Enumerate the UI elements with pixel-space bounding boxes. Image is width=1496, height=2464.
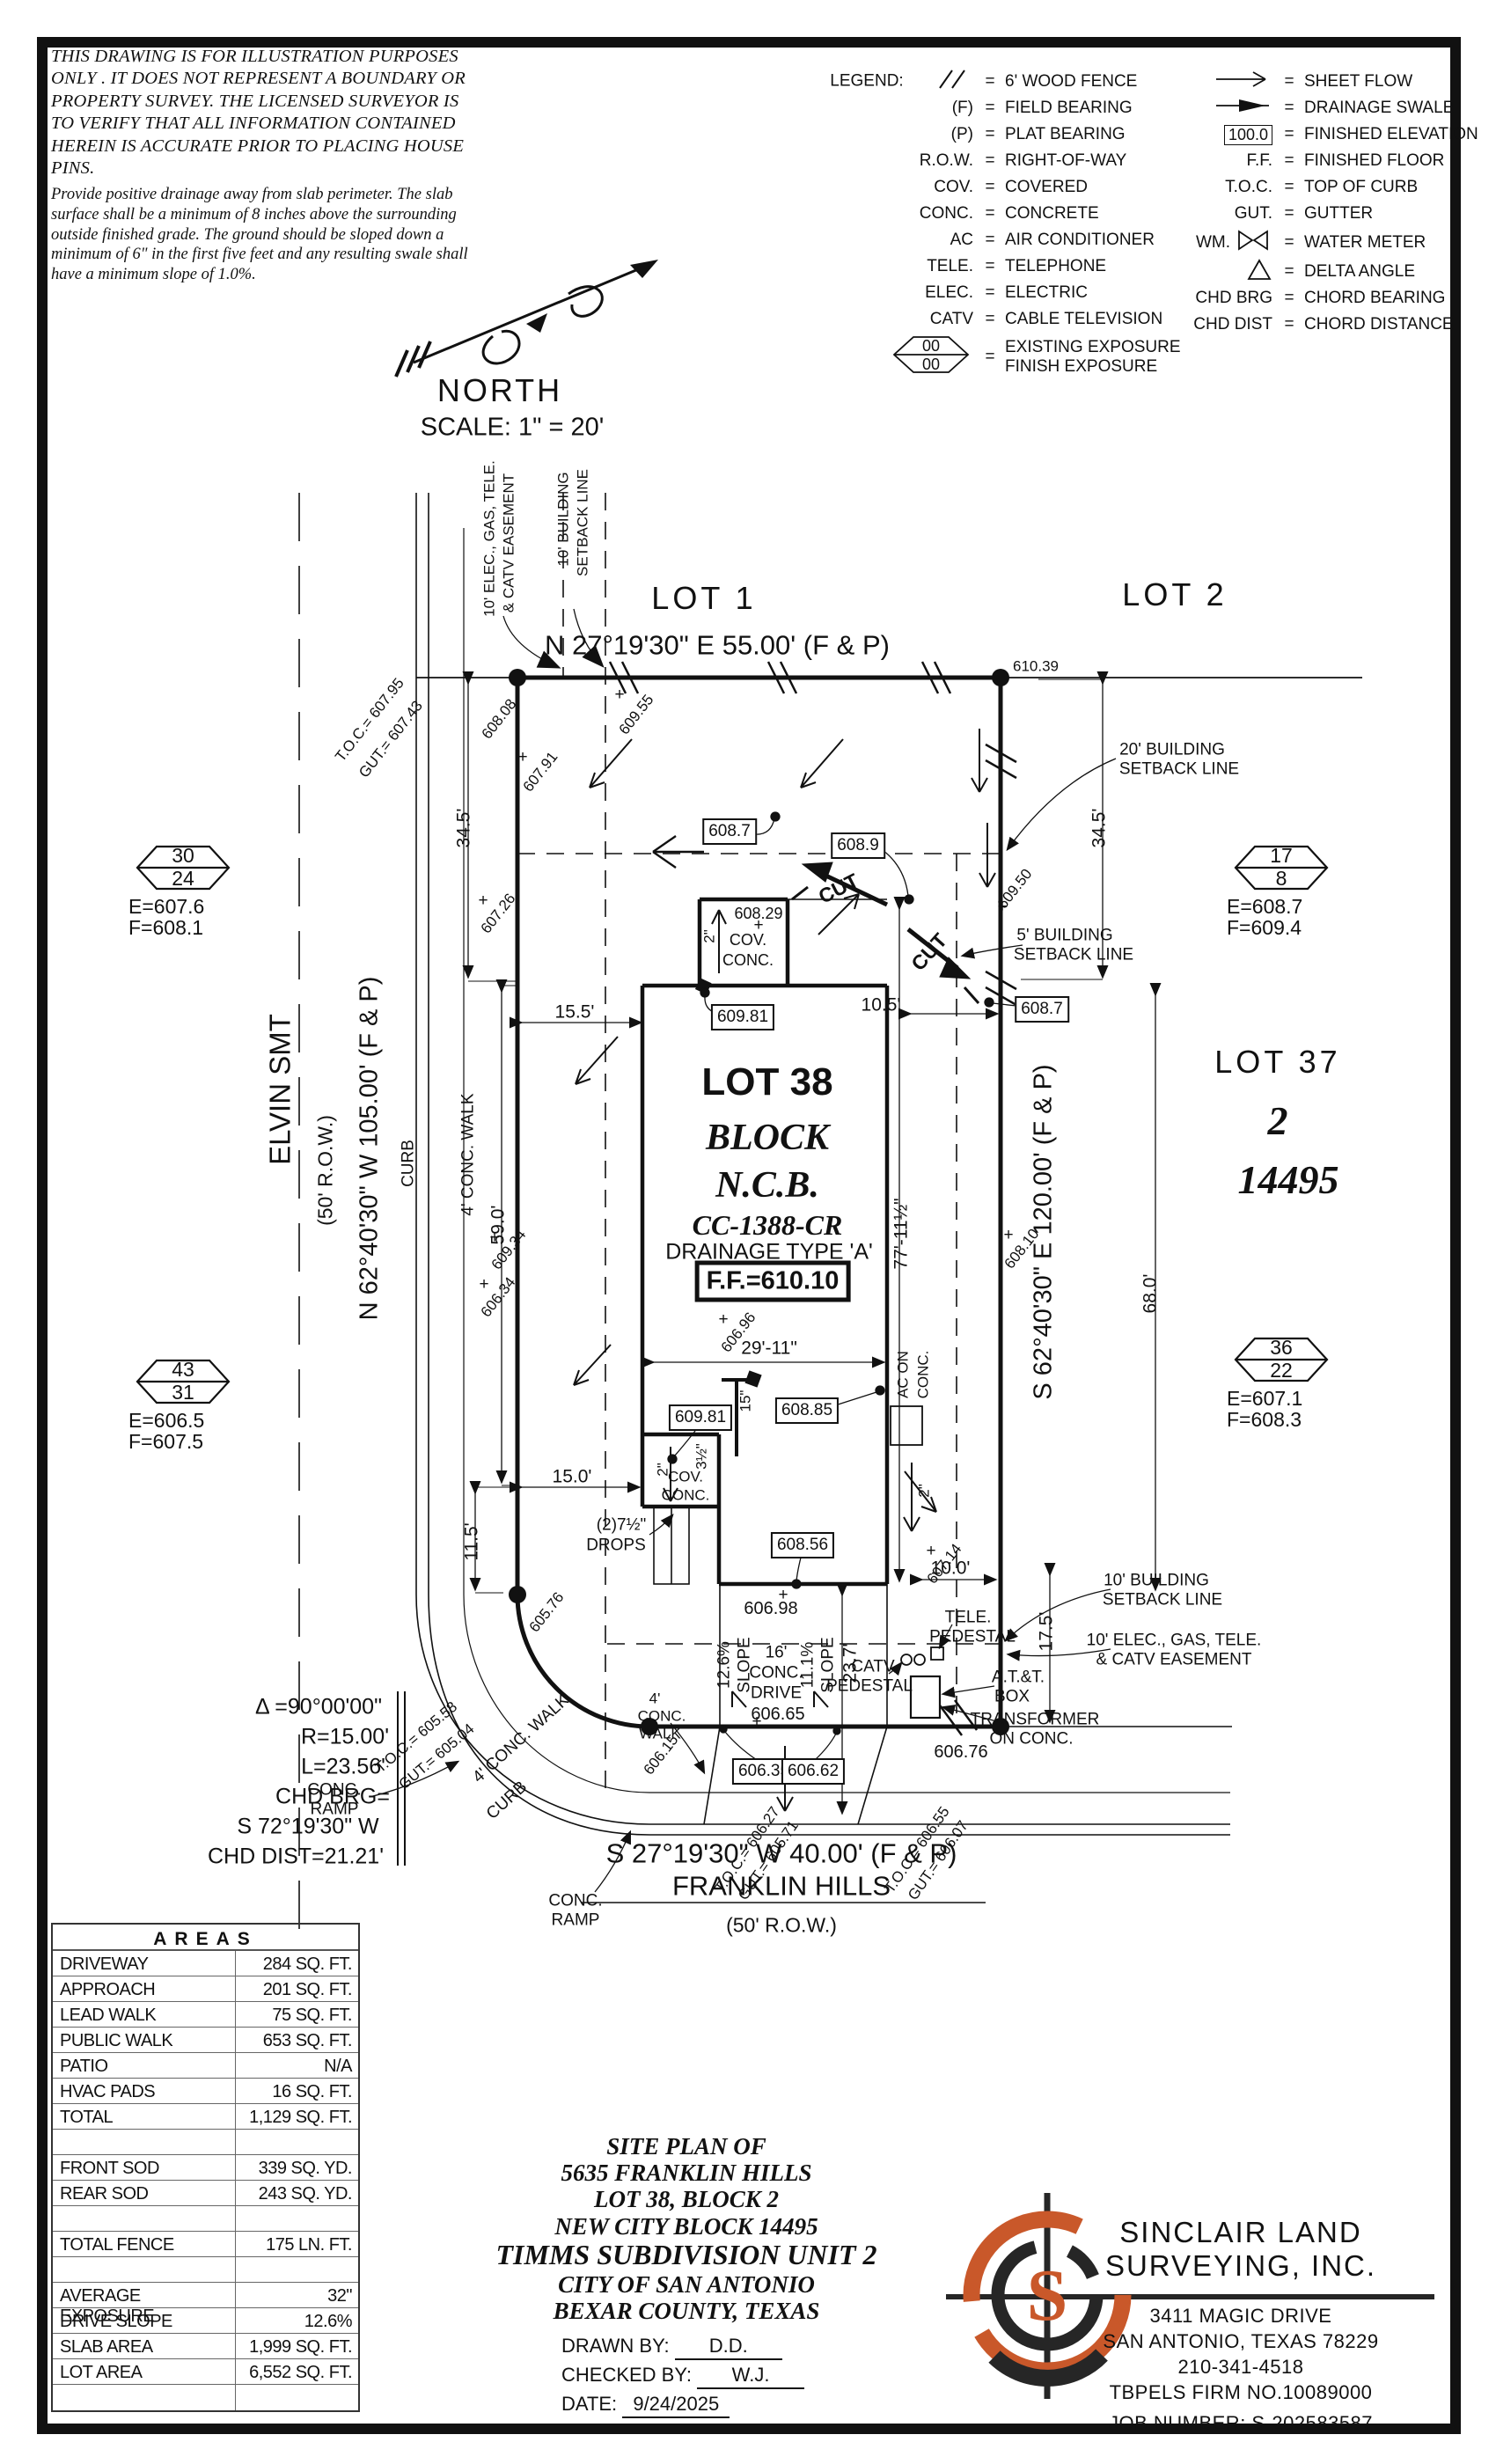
exposure-marker: 4331E=606.5F=607.5 <box>128 1358 229 1453</box>
areas-row-value: N/A <box>236 2053 358 2078</box>
plan-text-label: 3½" <box>694 1443 709 1470</box>
areas-row-value: 16 SQ. FT. <box>236 2079 358 2103</box>
areas-table-row <box>53 2130 358 2155</box>
finished-elevation-box: 608.9 <box>831 832 885 859</box>
areas-row-value: 175 LN. FT. <box>236 2232 358 2256</box>
plan-text-label: SETBACK LINE <box>1103 1592 1222 1609</box>
plan-text-label: SETBACK LINE <box>1014 947 1133 964</box>
site-plan-page: THIS DRAWING IS FOR ILLUSTRATION PURPOSE… <box>0 0 1496 2464</box>
plan-text-label: 12.6% <box>716 1641 733 1689</box>
scale-label: SCALE: 1" = 20' <box>421 415 604 441</box>
areas-row-label: LEAD WALK <box>53 2002 236 2027</box>
plan-text-label: L=23.56' <box>301 1756 385 1778</box>
plan-text-label: A.T.&T. <box>992 1669 1045 1686</box>
finished-elevation-box: 609.81 <box>711 1004 774 1030</box>
plan-text-label: 11.5' <box>463 1522 481 1560</box>
title-block-line: 5635 FRANKLIN HILLS <box>458 2160 915 2186</box>
svg-text:22: 22 <box>1270 1359 1293 1382</box>
title-block-field: CHECKED BY: W.J. <box>561 2364 915 2389</box>
plan-text-label: N.C.B. <box>715 1167 819 1204</box>
areas-row-value: 1,129 SQ. FT. <box>236 2104 358 2129</box>
plan-text-label: 34.5' <box>455 809 473 848</box>
title-block-line: SITE PLAN OF <box>458 2133 915 2160</box>
areas-row-value: 653 SQ. FT. <box>236 2028 358 2052</box>
svg-text:30: 30 <box>172 844 194 867</box>
plan-text-label: AC ON <box>896 1351 911 1398</box>
svg-text:F=607.5: F=607.5 <box>128 1430 203 1453</box>
areas-table-row: FRONT SOD339 SQ. YD. <box>53 2155 358 2181</box>
plan-text-label: 15" <box>738 1390 753 1412</box>
field-value: W.J. <box>697 2364 804 2389</box>
plan-text-label: 10' BUILDING <box>556 472 571 566</box>
finished-elevation-box: 606.62 <box>781 1758 845 1785</box>
areas-row-label: REAR SOD <box>53 2181 236 2205</box>
plan-text-label: PEDESTAL <box>826 1678 913 1695</box>
plan-text-label: LOT 2 <box>1122 579 1227 611</box>
plan-text-label: 14495 <box>1238 1160 1339 1200</box>
plan-text-label: N 27°19'30" E 55.00' (F & P) <box>545 632 890 659</box>
plan-text-label: CHD BRG= <box>275 1786 390 1808</box>
title-block-field: DRAWN BY: D.D. <box>561 2335 915 2360</box>
svg-text:E=607.1: E=607.1 <box>1227 1387 1302 1410</box>
spot-elevation-cross: + <box>997 898 1007 917</box>
svg-text:36: 36 <box>1270 1336 1293 1359</box>
plan-text-label: (2)7½" <box>597 1517 646 1534</box>
areas-row-value: 12.6% <box>236 2308 358 2333</box>
field-label: DATE: <box>561 2393 622 2415</box>
firm-name-line1: SINCLAIR LAND <box>1082 2216 1399 2249</box>
plan-text-label: 20' BUILDING <box>1119 742 1225 759</box>
plan-text-label: 10.5' <box>862 996 901 1015</box>
areas-row-label: DRIVEWAY <box>53 1951 236 1976</box>
svg-text:E=607.6: E=607.6 <box>128 895 204 918</box>
finished-floor-box: F.F.=610.10 <box>695 1261 851 1302</box>
plan-text-label: CC-1388-CR <box>693 1211 843 1239</box>
plan-text-label: CONC. <box>722 952 774 968</box>
plan-text-label: 10' ELEC., GAS, TELE. <box>1087 1632 1262 1649</box>
title-block-field: DATE: 9/24/2025 <box>561 2393 915 2418</box>
field-value: 9/24/2025 <box>622 2393 730 2418</box>
spot-elevation-cross: + <box>778 1586 788 1605</box>
plan-text-label: WALK <box>639 1727 681 1742</box>
north-arrow-icon <box>396 260 658 377</box>
plan-text-label: & CATV EASEMENT <box>502 473 517 612</box>
plan-text-label: BLOCK <box>706 1119 829 1156</box>
svg-text:E=606.5: E=606.5 <box>128 1409 204 1432</box>
title-block-line: LOT 38, BLOCK 2 <box>458 2186 915 2212</box>
plan-text-label: RAMP <box>552 1912 600 1929</box>
plan-text-label: & CATV EASEMENT <box>1096 1652 1251 1668</box>
areas-row-label: PATIO <box>53 2053 236 2078</box>
plan-text-label: LOT 37 <box>1214 1046 1340 1078</box>
plan-text-label: CONC. <box>638 1709 686 1724</box>
field-value: D.D. <box>675 2335 782 2360</box>
svg-text:43: 43 <box>172 1358 194 1381</box>
plan-text-label: COV. <box>668 1470 703 1485</box>
plan-text-label: 606.76 <box>934 1743 987 1761</box>
areas-row-value <box>236 2257 358 2282</box>
spot-elevation-cross: + <box>926 1542 935 1561</box>
plan-text-label: TELE. <box>945 1610 992 1626</box>
areas-table-row: TOTAL FENCE175 LN. FT. <box>53 2232 358 2257</box>
finished-elevation-box: 608.7 <box>1015 996 1069 1023</box>
svg-text:31: 31 <box>172 1381 194 1404</box>
title-block-line: CITY OF SAN ANTONIO <box>458 2271 915 2298</box>
areas-row-label: APPROACH <box>53 1976 236 2001</box>
areas-table-row: LEAD WALK75 SQ. FT. <box>53 2002 358 2028</box>
areas-table-row: SLAB AREA1,999 SQ. FT. <box>53 2334 358 2359</box>
plan-text-label: (50' R.O.W.) <box>316 1115 336 1226</box>
plan-text-label: 4' CONC. WALK <box>460 1093 477 1215</box>
spot-elevation-cross: + <box>489 1228 499 1248</box>
plan-text-label: DROPS <box>586 1537 646 1554</box>
finished-elevation-box: 608.7 <box>702 818 757 845</box>
plan-text-label: 29'-11" <box>741 1339 797 1358</box>
areas-row-value: 32" <box>236 2283 358 2307</box>
plan-text-label: CONC. <box>749 1665 803 1682</box>
job-number: JOB NUMBER: S-202583587 <box>1082 2412 1399 2435</box>
firm-phone: 210-341-4518 <box>1082 2356 1399 2379</box>
plan-text-label: PEDESTAL <box>929 1629 1016 1646</box>
plan-text-label: N 62°40'30" W 105.00' (F & P) <box>357 977 383 1321</box>
plan-text-label: CONC. <box>662 1488 710 1503</box>
plan-text-label: LOT 1 <box>651 583 756 614</box>
areas-row-label: FRONT SOD <box>53 2155 236 2180</box>
plan-text-label: 4' <box>649 1691 661 1706</box>
areas-row-label: HVAC PADS <box>53 2079 236 2103</box>
areas-row-label: PUBLIC WALK <box>53 2028 236 2052</box>
areas-table-title: AREAS <box>53 1925 358 1951</box>
areas-row-label: SLAB AREA <box>53 2334 236 2358</box>
title-block-line: TIMMS SUBDIVISION UNIT 2 <box>458 2240 915 2271</box>
areas-row-label <box>53 2206 236 2231</box>
field-label: CHECKED BY: <box>561 2364 697 2386</box>
areas-row-value: 201 SQ. FT. <box>236 1976 358 2001</box>
svg-text:8: 8 <box>1276 867 1287 890</box>
areas-row-value <box>236 2206 358 2231</box>
areas-row-value <box>236 2385 358 2410</box>
svg-text:F=609.4: F=609.4 <box>1227 916 1302 939</box>
areas-row-label <box>53 2130 236 2154</box>
plan-text-label: BOX <box>994 1689 1030 1705</box>
firm-address1: 3411 MAGIC DRIVE <box>1082 2305 1399 2328</box>
areas-table-row <box>53 2257 358 2283</box>
svg-text:17: 17 <box>1270 844 1293 867</box>
plan-text-label: 606.98 <box>744 1600 797 1617</box>
plan-text-label: CONC. <box>916 1351 931 1399</box>
exposure-marker: 178E=608.7F=609.4 <box>1227 844 1327 939</box>
areas-row-label: LOT AREA <box>53 2359 236 2384</box>
spot-elevation-cross: + <box>479 1275 488 1294</box>
plan-text-label: CATV <box>851 1659 894 1676</box>
plan-text-label: 77'-11½" <box>892 1198 911 1269</box>
field-label: DRAWN BY: <box>561 2335 675 2357</box>
areas-table-row: APPROACH201 SQ. FT. <box>53 1976 358 2002</box>
plan-text-label: DRIVE <box>751 1685 802 1702</box>
spot-elevation-cross: + <box>1003 1226 1013 1245</box>
plan-text-label: S 72°19'30" W <box>237 1816 378 1838</box>
plan-text-label: 2 <box>1268 1101 1288 1141</box>
plan-text-label: CONC. <box>548 1893 602 1910</box>
areas-row-value: 284 SQ. FT. <box>236 1951 358 1976</box>
finished-elevation-box: 608.85 <box>775 1397 839 1424</box>
areas-table-row: TOTAL1,129 SQ. FT. <box>53 2104 358 2130</box>
plan-text-label: TRANSFORMER <box>971 1712 1100 1728</box>
areas-row-label: AVERAGE EXPOSURE <box>53 2283 236 2307</box>
title-block-line: NEW CITY BLOCK 14495 <box>458 2213 915 2240</box>
plan-text-label: SETBACK LINE <box>1119 761 1239 778</box>
areas-table-body: DRIVEWAY284 SQ. FT.APPROACH201 SQ. FT.LE… <box>53 1951 358 2410</box>
plan-text-label: 16' <box>766 1645 788 1661</box>
plan-text-label: FRANKLIN HILLS <box>672 1873 891 1900</box>
svg-text:24: 24 <box>172 867 194 890</box>
plan-text-label: 2" <box>917 1484 932 1498</box>
plan-text-label: 10' ELEC., GAS, TELE. <box>482 460 497 617</box>
areas-table-row: PATION/A <box>53 2053 358 2079</box>
areas-row-label: DRIVE SLOPE <box>53 2308 236 2333</box>
areas-row-value: 6,552 SQ. FT. <box>236 2359 358 2384</box>
areas-table-row: REAR SOD243 SQ. YD. <box>53 2181 358 2206</box>
title-block-fields: DRAWN BY: D.D.CHECKED BY: W.J.DATE: 9/24… <box>458 2335 915 2418</box>
finished-elevation-box: 608.56 <box>771 1532 834 1558</box>
areas-row-value: 243 SQ. YD. <box>236 2181 358 2205</box>
areas-table-row <box>53 2385 358 2410</box>
svg-text:S: S <box>1027 2255 1068 2336</box>
plan-text-label: 2" <box>702 929 717 943</box>
areas-row-label <box>53 2257 236 2282</box>
plan-text-label: 34.5' <box>1090 809 1109 848</box>
plan-text-label: 10' BUILDING <box>1104 1573 1209 1589</box>
spot-elevation-cross: + <box>517 748 527 767</box>
spot-elevation-cross: + <box>752 1712 761 1732</box>
areas-row-value: 1,999 SQ. FT. <box>236 2334 358 2358</box>
svg-text:F=608.3: F=608.3 <box>1227 1408 1302 1431</box>
plan-text-label: ELVIN SMT <box>266 1014 295 1165</box>
spot-elevation-cross: + <box>478 891 488 911</box>
areas-row-value: 339 SQ. YD. <box>236 2155 358 2180</box>
svg-text:F=608.1: F=608.1 <box>128 916 203 939</box>
plan-text-label: CHD DIST=21.21' <box>208 1846 384 1868</box>
areas-row-value: 75 SQ. FT. <box>236 2002 358 2027</box>
areas-table-row: LOT AREA6,552 SQ. FT. <box>53 2359 358 2385</box>
areas-table-row: AVERAGE EXPOSURE32" <box>53 2283 358 2308</box>
areas-table-row <box>53 2206 358 2232</box>
plan-text-label: LOT 38 <box>701 1063 832 1102</box>
plan-text-label: 10.0' <box>931 1559 971 1578</box>
areas-row-label: TOTAL FENCE <box>53 2232 236 2256</box>
areas-row-label <box>53 2385 236 2410</box>
firm-name-line2: SURVEYING, INC. <box>1082 2249 1399 2283</box>
areas-row-value <box>236 2130 358 2154</box>
plan-text-label: 15.0' <box>553 1468 592 1486</box>
plan-text-label: CURB <box>400 1140 417 1187</box>
spot-elevation-cross: + <box>753 916 763 935</box>
title-block-line: BEXAR COUNTY, TEXAS <box>458 2298 915 2324</box>
plan-text-label: SETBACK LINE <box>576 469 590 576</box>
svg-text:E=608.7: E=608.7 <box>1227 895 1302 918</box>
plan-text-label: 15.5' <box>555 1003 595 1022</box>
areas-table-row: PUBLIC WALK653 SQ. FT. <box>53 2028 358 2053</box>
areas-table-row: HVAC PADS16 SQ. FT. <box>53 2079 358 2104</box>
plan-text-label: 17.5' <box>1038 1612 1056 1652</box>
areas-row-label: TOTAL <box>53 2104 236 2129</box>
plan-text-label: 68.0' <box>1141 1274 1160 1314</box>
title-block-lines: SITE PLAN OF5635 FRANKLIN HILLSLOT 38, B… <box>458 2133 915 2324</box>
title-block: SITE PLAN OF5635 FRANKLIN HILLSLOT 38, B… <box>458 2133 915 2418</box>
exposure-marker: 3622E=607.1F=608.3 <box>1227 1336 1327 1431</box>
plan-text-label: 610.39 <box>1013 659 1059 674</box>
plan-text-label: R=15.00' <box>301 1727 389 1749</box>
spot-elevation-cross: + <box>718 1310 728 1330</box>
plan-text-label: ON CONC. <box>990 1731 1074 1748</box>
areas-table-row: DRIVEWAY284 SQ. FT. <box>53 1951 358 1976</box>
north-label: NORTH <box>437 375 562 407</box>
spot-elevation-cross: + <box>614 686 624 705</box>
plan-text-label: Δ =90°00'00" <box>255 1697 382 1719</box>
firm-address2: SAN ANTONIO, TEXAS 78229 <box>1082 2330 1399 2353</box>
plan-text-label: 5' BUILDING <box>1016 928 1112 944</box>
firm-block: SINCLAIR LAND SURVEYING, INC. 3411 MAGIC… <box>1082 2216 1399 2435</box>
plan-text-label: 11.1% <box>800 1642 817 1688</box>
plan-text-label: (50' R.O.W.) <box>726 1916 837 1936</box>
plan-text-label: SLOPE <box>820 1637 837 1692</box>
areas-table-row: DRIVE SLOPE12.6% <box>53 2308 358 2334</box>
firm-license: TBPELS FIRM NO.10089000 <box>1082 2381 1399 2404</box>
areas-table: AREAS DRIVEWAY284 SQ. FT.APPROACH201 SQ.… <box>51 1923 360 2412</box>
finished-elevation-box: 609.81 <box>669 1404 732 1431</box>
exposure-marker: 3024E=607.6F=608.1 <box>128 844 229 939</box>
